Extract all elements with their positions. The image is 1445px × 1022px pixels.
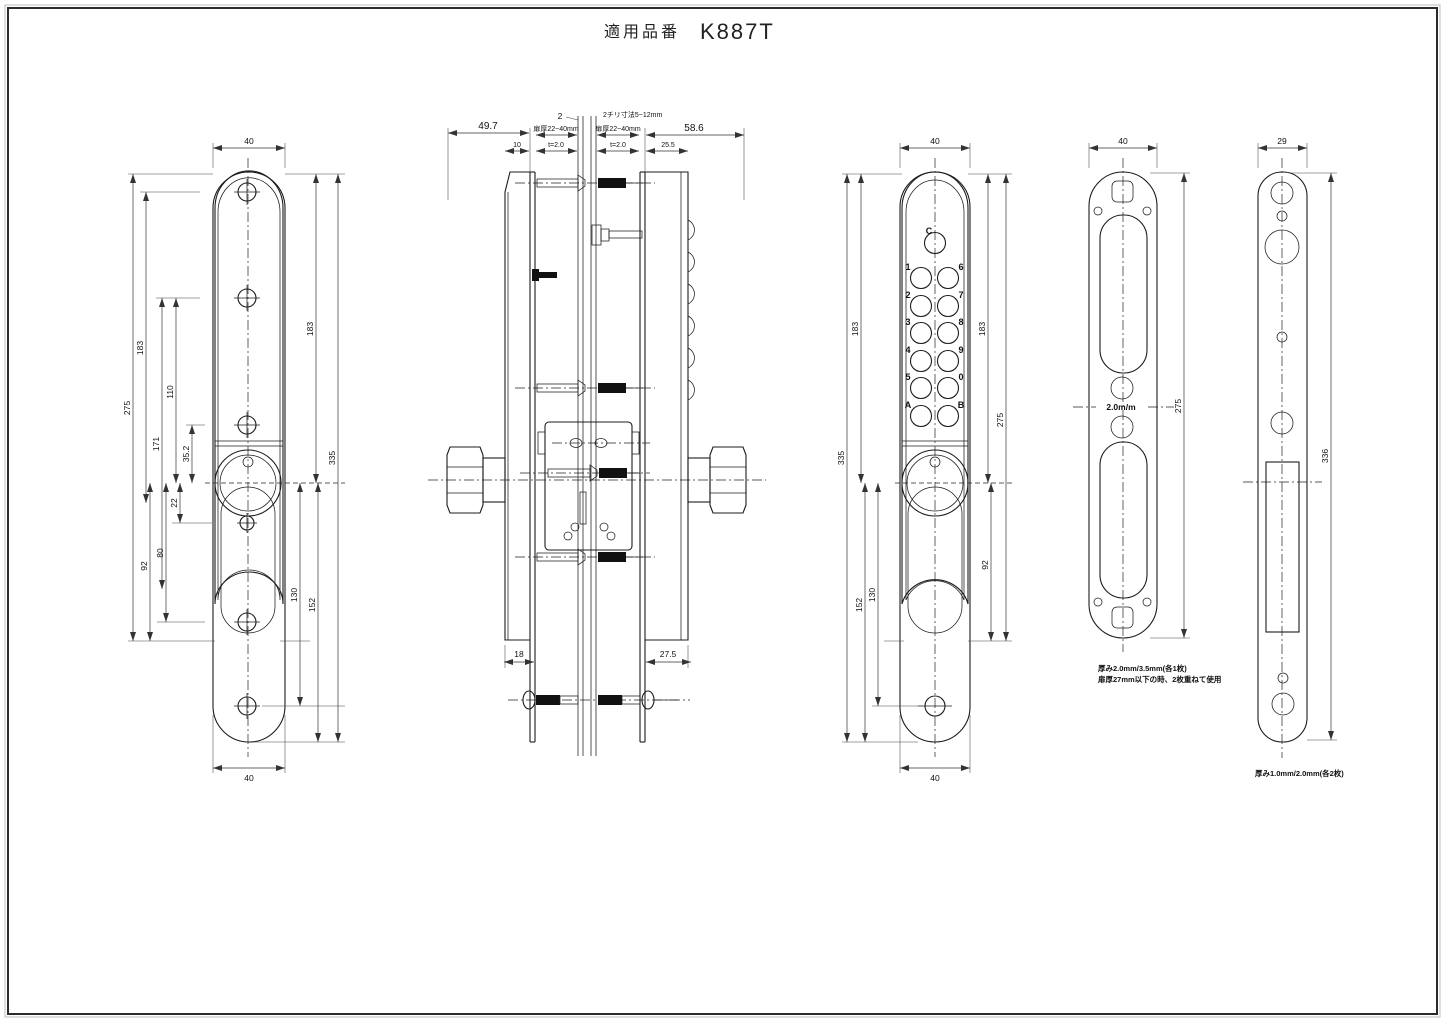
button-0-label: 0 (958, 372, 963, 382)
spacer-extension-lines (1089, 143, 1190, 638)
spacer-plate-view: 2.0m/m 40 275 厚み2.0mm/3.5mm(各1枚) 扉厚27mm以… (1073, 136, 1221, 684)
dim-58-6: 58.6 (684, 123, 704, 134)
door-thickness-right: 扉厚22~40mm (595, 124, 640, 133)
button-a[interactable] (911, 406, 932, 427)
rear-unit-body-section (645, 172, 688, 640)
button-a-label: A (905, 400, 912, 410)
spacer-slot-bottom (1100, 442, 1147, 598)
keypad-dim-40-bottom: 40 (930, 773, 940, 783)
keypad-extension-lines (842, 143, 1012, 773)
strike-extension-lines (1258, 143, 1337, 740)
button-4[interactable] (911, 351, 932, 372)
strike-hole-6 (1278, 673, 1288, 683)
spacer-hole-upper (1111, 377, 1133, 399)
button-0[interactable] (938, 378, 959, 399)
door-leaf-lines (578, 116, 596, 756)
dim-92: 92 (139, 561, 149, 571)
button-1-label: 1 (905, 262, 910, 272)
front-body-outline (215, 171, 283, 604)
button-3-label: 3 (905, 317, 910, 327)
lock-case-assembly (520, 422, 650, 550)
dim-49-7: 49.7 (478, 121, 498, 132)
dim-183-right: 183 (305, 322, 315, 336)
button-b[interactable] (938, 406, 959, 427)
strike-plate-outline (1258, 172, 1307, 742)
button-c-label: C (926, 226, 933, 236)
strike-note: 厚み1.0mm/2.0mm(各2枚) (1255, 768, 1344, 778)
technical-drawing-canvas: 適用品番 K887T (0, 0, 1445, 1022)
keypad-dim-40-top: 40 (930, 136, 940, 146)
spacer-note-line1: 厚み2.0mm/3.5mm(各1枚) (1098, 663, 1187, 673)
dim-171: 171 (151, 437, 161, 451)
button-5[interactable] (911, 378, 932, 399)
dim-40-top: 40 (244, 136, 254, 146)
button-6[interactable] (938, 268, 959, 289)
dim-2-gap: 2 (558, 111, 563, 121)
dim-40-bottom: 40 (244, 773, 254, 783)
spacer-slot-top (1100, 215, 1147, 373)
dim-183-left: 183 (135, 341, 145, 355)
dim-80: 80 (155, 548, 165, 558)
spacer-note-line2: 扉厚27mm以下の時、2枚重ねて使用 (1097, 674, 1221, 684)
button-8[interactable] (938, 323, 959, 344)
strike-rect-cutout (1266, 462, 1299, 632)
front-body-inner-line (218, 178, 280, 600)
button-1[interactable] (911, 268, 932, 289)
keypad-buttons-profile (688, 220, 694, 400)
clearance-note: 2チリ寸法5~12mm (603, 110, 662, 119)
button-b-label: B (958, 400, 965, 410)
button-3[interactable] (911, 323, 932, 344)
keypad-dim-152: 152 (854, 598, 864, 612)
door-thickness-left: 扉厚22~40mm (533, 124, 578, 133)
part-number: K887T (700, 19, 775, 44)
strike-dim-336: 336 (1320, 449, 1330, 463)
spacer-square-hole-top (1112, 181, 1133, 202)
button-2-label: 2 (905, 290, 910, 300)
button-2[interactable] (911, 296, 932, 317)
sheet-border (5, 5, 1440, 1017)
keypad-dim-183-right: 183 (977, 322, 987, 336)
keypad-dim-130: 130 (867, 588, 877, 602)
spacer-dim-40: 40 (1118, 136, 1128, 146)
dim-10: 10 (513, 142, 521, 149)
front-elevation-view: 40 40 275 183 171 110 35.2 22 80 92 183 … (122, 136, 345, 783)
mounting-plates-section (530, 172, 645, 742)
front-dimensions: 40 40 275 183 171 110 35.2 22 80 92 183 … (122, 136, 338, 783)
mounting-screws (234, 179, 260, 719)
button-6-label: 6 (958, 262, 963, 272)
title-label: 適用品番 (604, 23, 680, 41)
button-7-label: 7 (958, 290, 963, 300)
front-unit-body-section (505, 172, 530, 640)
keypad-dim-92: 92 (980, 560, 990, 570)
keypad-dim-275: 275 (995, 413, 1005, 427)
keypad-dim-183-left: 183 (850, 322, 860, 336)
button-9[interactable] (938, 351, 959, 372)
dim-110: 110 (165, 385, 175, 399)
through-bolts (515, 175, 655, 396)
dim-130: 130 (289, 588, 299, 602)
strike-plate-view: 29 336 厚み1.0mm/2.0mm(各2枚) (1243, 136, 1344, 778)
dim-27-5: 27.5 (660, 649, 677, 659)
button-4-label: 4 (905, 345, 910, 355)
dim-275: 275 (122, 401, 132, 415)
section-view: 2 2チリ寸法5~12mm 49.7 扉厚22~40mm 扉厚22~40mm 5… (428, 110, 766, 756)
button-7[interactable] (938, 296, 959, 317)
spacer-dim-275: 275 (1173, 399, 1183, 413)
drawing-sheet: 適用品番 K887T (0, 0, 1445, 1022)
strike-hole-7 (1272, 693, 1294, 715)
dim-152: 152 (307, 598, 317, 612)
title-block: 適用品番 K887T (604, 19, 775, 44)
front-extension-lines (128, 143, 345, 773)
spacer-thickness-label: 2.0m/m (1106, 402, 1136, 412)
button-8-label: 8 (958, 317, 963, 327)
spacer-square-hole-bottom (1112, 607, 1133, 628)
dim-25-5: 25.5 (661, 142, 675, 149)
t20-right: t=2.0 (610, 142, 626, 149)
t20-left: t=2.0 (548, 142, 564, 149)
dim-22: 22 (169, 498, 179, 508)
button-9-label: 9 (958, 345, 963, 355)
dim-18: 18 (514, 649, 524, 659)
keypad-dim-335: 335 (836, 451, 846, 465)
strike-dim-29: 29 (1277, 136, 1287, 146)
keypad-dimensions: 40 40 335 183 152 130 183 275 92 (836, 136, 1006, 783)
button-5-label: 5 (905, 372, 910, 382)
lower-through-bolt (515, 549, 655, 565)
keypad-elevation-view: C 1 6 2 7 3 8 4 9 5 0 A B (836, 136, 1012, 783)
dim-35-2: 35.2 (181, 445, 191, 462)
spacer-hole-lower (1111, 416, 1133, 438)
dim-335: 335 (327, 451, 337, 465)
